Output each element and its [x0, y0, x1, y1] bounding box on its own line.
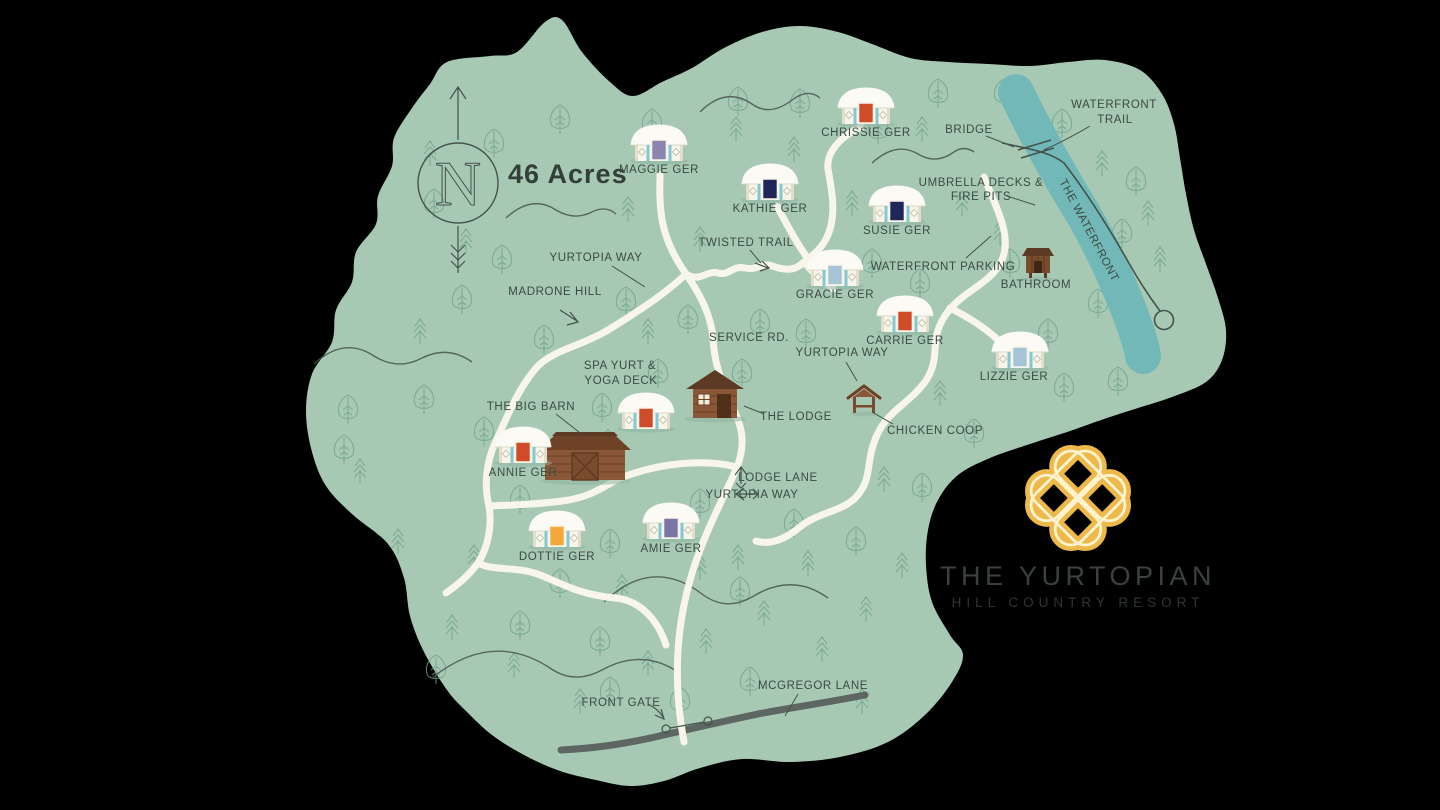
label-bridge: BRIDGE [945, 124, 993, 136]
logo-title: THE YURTOPIAN [940, 561, 1216, 591]
label-chrissie-ger: CHRISSIE GER [821, 127, 911, 139]
label-chicken-coop: CHICKEN COOP [887, 425, 983, 437]
coop-rail [853, 405, 875, 408]
label-the-lodge: THE LODGE [760, 411, 832, 423]
label-yurtopia-way-lower: YURTOPIA WAY [705, 489, 798, 501]
yurt-door [516, 442, 531, 462]
yurtopian-resort-map: N 46 Acres [0, 0, 1440, 810]
label-annie-ger: ANNIE GER [489, 467, 558, 479]
bathroom-leg [1029, 273, 1032, 278]
compass-north-letter: N [435, 148, 481, 219]
yurt-door [664, 518, 679, 538]
yurt-door [859, 103, 874, 123]
yurt-door [763, 179, 778, 199]
label-waterfront-parking: WATERFRONT PARKING [871, 261, 1016, 273]
yurt-door [639, 408, 654, 428]
label-front-gate: FRONT GATE [581, 697, 660, 709]
label-susie-ger: SUSIE GER [863, 225, 931, 237]
label-gracie-ger: GRACIE GER [796, 289, 874, 301]
label-yurtopia-way-upper: YURTOPIA WAY [549, 252, 642, 264]
yurt-door [828, 265, 843, 285]
label-waterfront-trail-1: WATERFRONT [1071, 99, 1157, 111]
label-umbrella-decks-1: UMBRELLA DECKS & [919, 177, 1044, 189]
yurt-door [652, 140, 667, 160]
bathroom-roof [1022, 248, 1054, 256]
label-umbrella-decks-2: FIRE PITS [951, 191, 1011, 203]
yurt-door [898, 311, 913, 331]
barn-roof-ridge [552, 432, 618, 436]
label-twisted-trail: TWISTED TRAIL [698, 237, 793, 249]
label-service-rd: SERVICE RD. [709, 332, 789, 344]
label-lizzie-ger: LIZZIE GER [980, 371, 1049, 383]
lodge-door [717, 394, 731, 418]
label-lodge-lane: LODGE LANE [738, 472, 818, 484]
label-carrie-ger: CARRIE GER [866, 335, 944, 347]
barn-roof [539, 436, 631, 450]
yurt-door [550, 526, 565, 546]
label-mcgregor-lane: MCGREGOR LANE [758, 680, 868, 692]
acreage-label: 46 Acres [508, 159, 628, 189]
label-spa-line2: YOGA DECK [584, 375, 657, 387]
yurt-door [1013, 347, 1028, 367]
yurt-amie-ger: AMIE GER [640, 503, 701, 556]
label-dottie-ger: DOTTIE GER [519, 551, 595, 563]
bathroom-door [1034, 261, 1042, 273]
yurt-spa [617, 393, 675, 433]
label-big-barn: THE BIG BARN [487, 401, 575, 413]
label-bathroom: BATHROOM [1001, 279, 1071, 291]
bathroom-leg [1044, 273, 1047, 278]
label-amie-ger: AMIE GER [640, 543, 701, 555]
yurt-door [890, 201, 905, 221]
label-madrone-hill: MADRONE HILL [508, 286, 601, 298]
label-maggie-ger: MAGGIE GER [619, 164, 699, 176]
label-waterfront-trail-2: TRAIL [1097, 114, 1133, 126]
label-kathie-ger: KATHIE GER [733, 203, 808, 215]
label-spa-line1: SPA YURT & [584, 360, 656, 372]
logo-subtitle: HILL COUNTRY RESORT [952, 595, 1205, 610]
label-yurtopia-way-mid: YURTOPIA WAY [795, 347, 888, 359]
